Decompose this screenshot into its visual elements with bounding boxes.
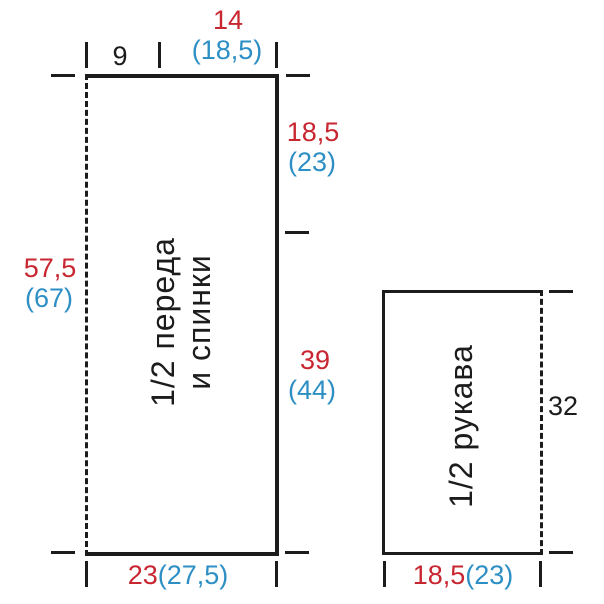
measurement-side-length: 39 xyxy=(300,347,330,374)
front-back-bottom-width-value: 23 xyxy=(128,560,158,590)
measurement-sleeve-length: 32 xyxy=(548,393,578,420)
sleeve-piece-label: 1/2 рукава xyxy=(444,344,480,508)
extension-dash xyxy=(549,551,573,554)
front-back-label-line2: и спинки xyxy=(182,237,218,407)
measurement-side-length-alt: (44) xyxy=(288,377,336,404)
measurement-armhole-depth-alt: (23) xyxy=(288,149,336,176)
sleeve-bottom-width-value: 18,5 xyxy=(413,560,466,590)
dimension-tick xyxy=(275,561,278,587)
measurement-neck-width-alt: (18,5) xyxy=(192,37,263,64)
extension-dash xyxy=(285,551,309,554)
measurement-front-back-bottom-width: 23(27,5) xyxy=(128,562,229,589)
extension-dash xyxy=(51,551,75,554)
extension-dash xyxy=(51,74,75,77)
measurement-armhole-depth: 18,5 xyxy=(287,119,340,146)
sleeve-label-line1: 1/2 рукава xyxy=(444,344,480,508)
dimension-tick xyxy=(275,42,278,68)
extension-dash xyxy=(285,231,309,234)
dimension-tick xyxy=(85,42,88,68)
front-back-piece-label: 1/2 переда и спинки xyxy=(146,237,218,407)
dimension-tick xyxy=(383,561,386,587)
measurement-shoulder-width: 9 xyxy=(112,43,127,70)
extension-dash xyxy=(286,74,310,77)
measurement-sleeve-bottom-width: 18,5(23) xyxy=(413,562,514,589)
front-back-label-line1: 1/2 переда xyxy=(146,237,182,407)
measurement-total-length-alt: (67) xyxy=(25,285,73,312)
measurement-neck-width: 14 xyxy=(213,7,243,34)
front-back-bottom-width-alt-value: (27,5) xyxy=(158,560,229,590)
dimension-tick xyxy=(85,561,88,587)
knitting-pattern-schematic: 1/2 переда и спинки 1/2 рукава 9 14 (18,… xyxy=(0,0,604,604)
sleeve-bottom-width-alt-value: (23) xyxy=(465,560,513,590)
dimension-tick xyxy=(158,42,161,68)
measurement-total-length: 57,5 xyxy=(24,255,77,282)
dimension-tick xyxy=(539,561,542,587)
extension-dash xyxy=(549,290,573,293)
